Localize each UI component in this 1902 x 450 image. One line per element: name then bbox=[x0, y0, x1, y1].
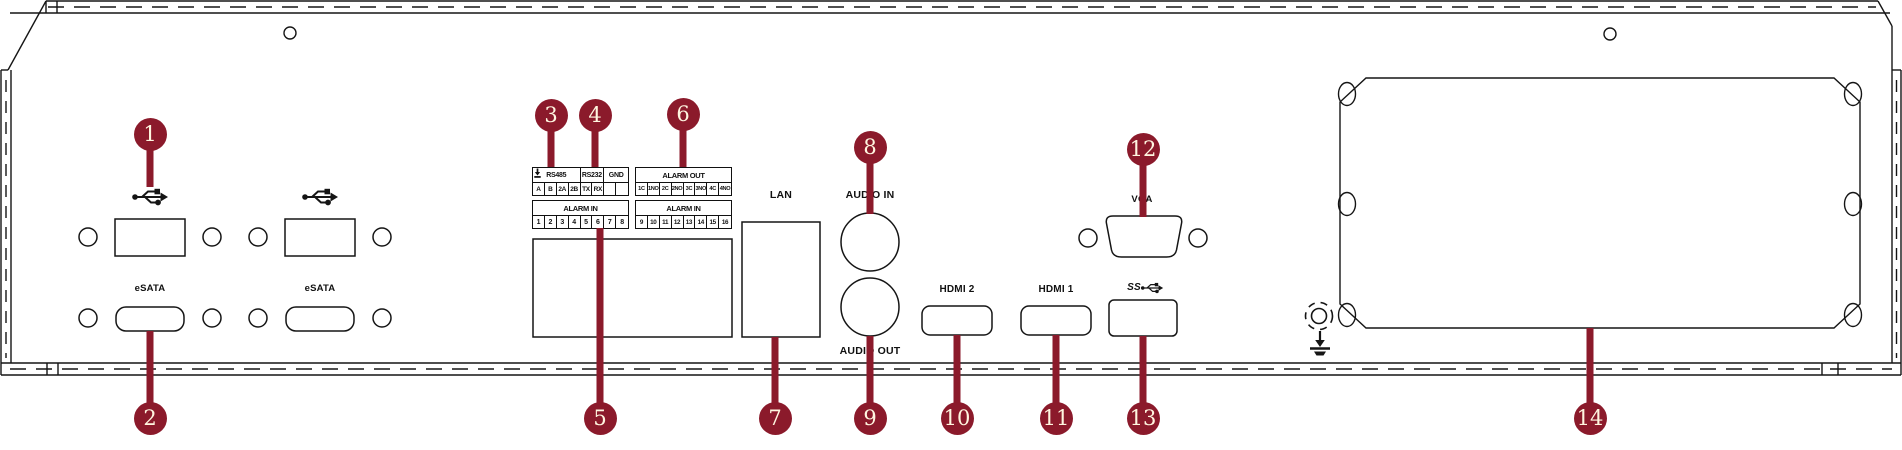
earth-ground-icon bbox=[1310, 331, 1330, 356]
esata-port-2 bbox=[286, 307, 354, 331]
audio-out-label: AUDIO OUT bbox=[840, 345, 901, 357]
terminal-pin: 2C bbox=[660, 183, 672, 195]
terminal-pin: 2NO bbox=[672, 183, 684, 195]
usb-port-1 bbox=[115, 219, 185, 256]
lan-label: LAN bbox=[770, 189, 792, 201]
io-ports bbox=[533, 213, 1207, 337]
screw-hole bbox=[79, 228, 97, 246]
ground-screw bbox=[1312, 309, 1327, 324]
rs232-header: RS232 bbox=[581, 168, 605, 182]
usb3-port bbox=[1109, 300, 1177, 336]
callout-9-badge: 9 bbox=[854, 402, 887, 435]
callout-11-badge: 11 bbox=[1040, 402, 1073, 435]
plate-screw-slot bbox=[1339, 304, 1356, 327]
screw-hole bbox=[203, 228, 221, 246]
usb-trident-icon bbox=[132, 189, 168, 206]
usb3-ss-trident-icon bbox=[1141, 283, 1163, 293]
terminal-pin: 5 bbox=[581, 216, 593, 228]
audio-in-jack bbox=[841, 213, 899, 271]
terminal-pin: 2B bbox=[569, 183, 581, 195]
hdmi-1-label: HDMI 1 bbox=[1038, 284, 1073, 295]
plate-screw-slot bbox=[1339, 193, 1356, 216]
terminal-pin: 11 bbox=[660, 216, 672, 228]
terminal-pin: 14 bbox=[695, 216, 707, 228]
nvr-rear-panel-diagram: RS485 RS232 GND A B 2A 2B TX RX ALARM OU… bbox=[0, 0, 1902, 450]
terminal-pin: 1 bbox=[533, 216, 545, 228]
screw-hole bbox=[284, 27, 296, 39]
callout-6-badge: 6 bbox=[667, 98, 700, 131]
callout-1-badge: 1 bbox=[134, 118, 167, 151]
terminal-pin: 10 bbox=[648, 216, 660, 228]
esata-port-1 bbox=[116, 307, 184, 331]
audio-in-label: AUDIO IN bbox=[846, 189, 895, 201]
screw-hole bbox=[1604, 28, 1616, 40]
terminal-pin: RX bbox=[592, 183, 604, 195]
screw-hole bbox=[1079, 229, 1097, 247]
earth-ground-icon bbox=[604, 183, 616, 195]
terminal-pin: 4 bbox=[569, 216, 581, 228]
terminal-connector-block bbox=[533, 239, 732, 337]
alarm-in-terminal-block-9-16: ALARM IN 9 10 11 12 13 14 15 16 bbox=[635, 200, 732, 229]
terminal-pin: 4NO bbox=[719, 183, 731, 195]
terminal-pin: 3 bbox=[557, 216, 569, 228]
terminal-pin: 8 bbox=[616, 216, 628, 228]
hdmi-2-label: HDMI 2 bbox=[939, 284, 974, 295]
screw-hole bbox=[79, 309, 97, 327]
terminal-pin: 3C bbox=[684, 183, 696, 195]
power-supply-plate bbox=[1339, 78, 1862, 328]
callout-8-badge: 8 bbox=[854, 131, 887, 164]
screw-hole bbox=[249, 309, 267, 327]
terminal-pin: B bbox=[545, 183, 557, 195]
ground-screw-dashed-ring bbox=[1306, 303, 1333, 330]
esata-label-2: eSATA bbox=[305, 283, 336, 294]
callout-14-badge: 14 bbox=[1574, 402, 1607, 435]
terminal-pin: A bbox=[533, 183, 545, 195]
alarm-in-header: ALARM IN bbox=[636, 201, 731, 215]
terminal-pin: 15 bbox=[707, 216, 719, 228]
alarm-in-terminal-block-1-8: ALARM IN 1 2 3 4 5 6 7 8 bbox=[532, 200, 629, 229]
plate-screw-slot bbox=[1339, 83, 1356, 106]
terminal-pin: 16 bbox=[719, 216, 731, 228]
rear-panel-line-art bbox=[0, 0, 1902, 450]
terminal-pin: 3NO bbox=[695, 183, 707, 195]
usb-trident-icon bbox=[302, 189, 338, 206]
usb3-ss-label: SS bbox=[1127, 282, 1141, 293]
screw-hole bbox=[373, 228, 391, 246]
alarm-out-header: ALARM OUT bbox=[636, 168, 731, 182]
callout-13-badge: 13 bbox=[1127, 402, 1160, 435]
terminal-pin: TX bbox=[581, 183, 593, 195]
plate-screw-slot bbox=[1845, 83, 1862, 106]
screw-hole bbox=[373, 309, 391, 327]
earth-ground-icon bbox=[616, 183, 628, 195]
usb-esata-group-2 bbox=[249, 189, 391, 331]
terminal-pin: 1C bbox=[636, 183, 648, 195]
callout-3-badge: 3 bbox=[535, 99, 568, 132]
terminal-pin: 4C bbox=[707, 183, 719, 195]
audio-out-jack bbox=[841, 278, 899, 336]
plate-screw-slot bbox=[1845, 193, 1862, 216]
terminal-pin: 12 bbox=[672, 216, 684, 228]
callout-5-badge: 5 bbox=[584, 402, 617, 435]
lan-port bbox=[742, 222, 820, 337]
terminal-pin: 13 bbox=[684, 216, 696, 228]
ground-point bbox=[1306, 303, 1333, 356]
terminal-pin: 1NO bbox=[648, 183, 660, 195]
usb-port-2 bbox=[285, 219, 355, 256]
terminal-pin: 2A bbox=[557, 183, 569, 195]
terminal-pin: 9 bbox=[636, 216, 648, 228]
usb-esata-group-1 bbox=[79, 189, 221, 331]
terminal-pin: 6 bbox=[592, 216, 604, 228]
callout-7-badge: 7 bbox=[759, 402, 792, 435]
gnd-header: GND bbox=[604, 168, 628, 182]
screw-hole bbox=[1189, 229, 1207, 247]
vga-label: VGA bbox=[1131, 194, 1152, 205]
terminal-pin: 2 bbox=[545, 216, 557, 228]
callout-4-badge: 4 bbox=[579, 99, 612, 132]
plate-screw-slot bbox=[1845, 304, 1862, 327]
alarm-out-terminal-block: ALARM OUT 1C 1NO 2C 2NO 3C 3NO 4C 4NO bbox=[635, 167, 732, 196]
vga-port bbox=[1106, 216, 1181, 257]
esata-label-1: eSATA bbox=[135, 283, 166, 294]
callout-12-badge: 12 bbox=[1127, 133, 1160, 166]
callout-10-badge: 10 bbox=[941, 402, 974, 435]
screw-hole bbox=[203, 309, 221, 327]
screw-hole bbox=[249, 228, 267, 246]
hdmi-1-port bbox=[1021, 306, 1091, 335]
alarm-in-header: ALARM IN bbox=[533, 201, 628, 215]
callout-2-badge: 2 bbox=[134, 402, 167, 435]
terminal-pin: 7 bbox=[604, 216, 616, 228]
hdmi-2-port bbox=[922, 306, 992, 335]
serial-terminal-block: RS485 RS232 GND A B 2A 2B TX RX bbox=[532, 167, 629, 196]
